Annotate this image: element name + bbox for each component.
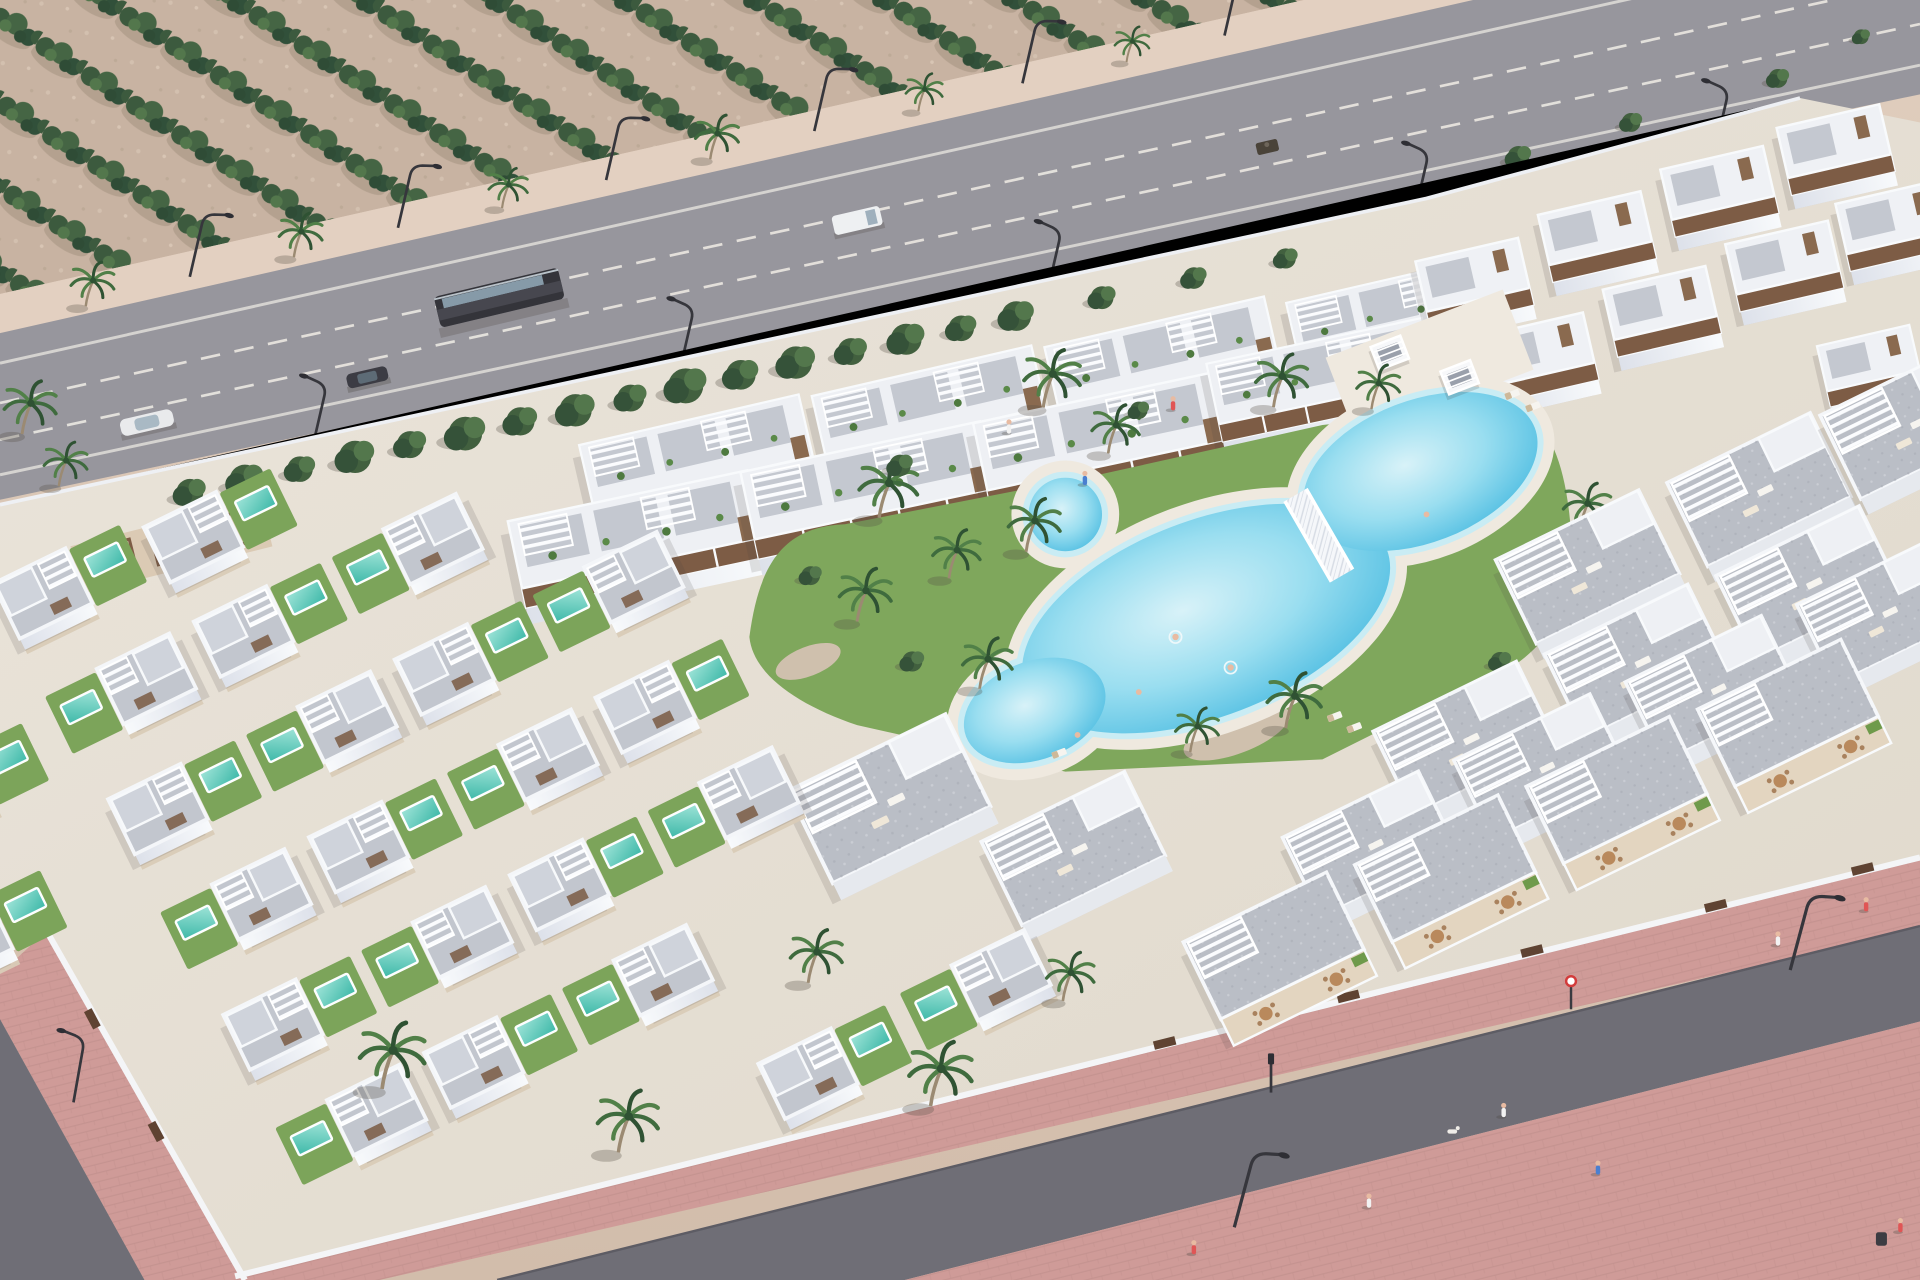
render-canvas: [0, 0, 1920, 1280]
aerial-render: [0, 0, 1920, 1280]
litter-bin: [1876, 1232, 1887, 1245]
